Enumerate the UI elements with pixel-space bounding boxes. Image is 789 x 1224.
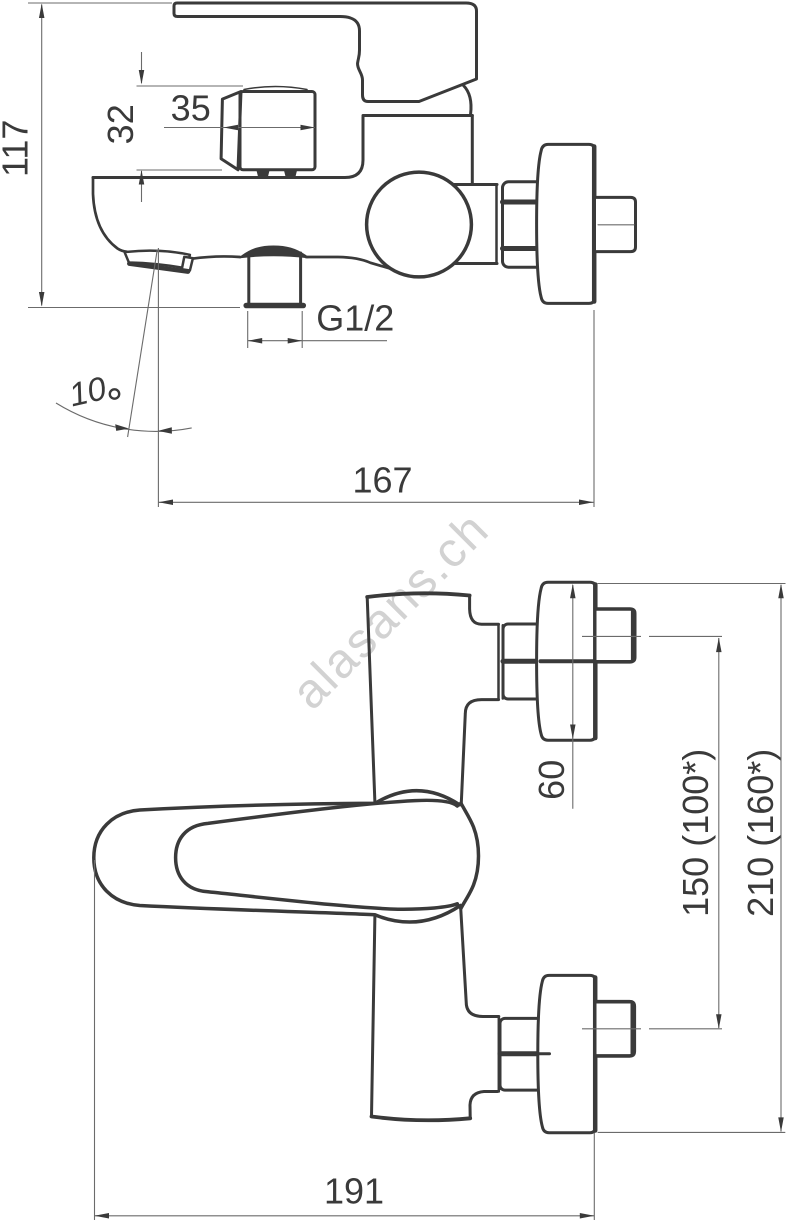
svg-text:117: 117 — [0, 120, 36, 177]
svg-text:60: 60 — [531, 760, 572, 800]
svg-text:35: 35 — [171, 88, 211, 129]
svg-text:167: 167 — [352, 460, 412, 501]
svg-text:150 (100*): 150 (100*) — [675, 749, 716, 917]
svg-text:191: 191 — [324, 1171, 384, 1212]
svg-text:210 (160*): 210 (160*) — [740, 749, 781, 917]
svg-text:G1/2: G1/2 — [316, 298, 394, 339]
svg-text:32: 32 — [100, 104, 141, 144]
